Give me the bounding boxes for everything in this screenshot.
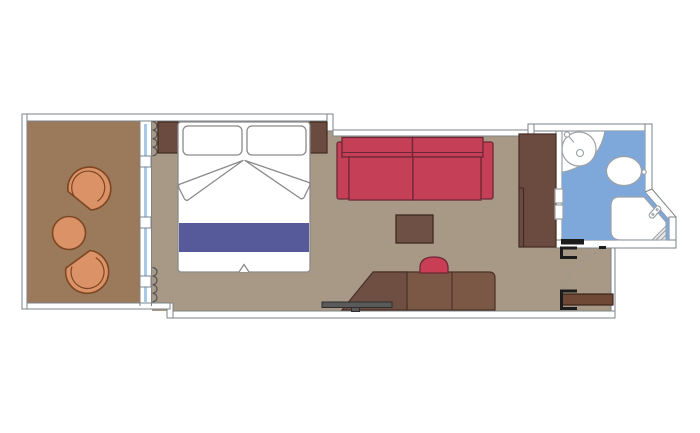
- tv: [322, 302, 392, 308]
- glass-door-handle-3: [140, 276, 151, 287]
- double-bed: [178, 122, 310, 272]
- wall-top-bathroom: [534, 124, 652, 131]
- wall-top-sofa: [333, 130, 534, 136]
- wall-step-1: [327, 114, 333, 131]
- sofa: [337, 138, 493, 201]
- tv-stand: [352, 308, 360, 312]
- sofa-seat-right: [413, 157, 481, 200]
- floor-plan: [0, 0, 700, 433]
- wardrobe-body: [519, 134, 556, 247]
- floor-plan-drawing: [0, 0, 700, 433]
- toilet: [607, 157, 642, 186]
- wall-balcony-bottom: [22, 303, 170, 309]
- stool: [420, 257, 448, 273]
- faucet: [564, 132, 569, 137]
- wall-top-bedroom: [22, 114, 333, 121]
- coffee-table: [396, 215, 433, 243]
- sofa-back-left: [342, 138, 413, 158]
- wall-right-upper: [645, 124, 652, 192]
- round-table: [53, 217, 86, 250]
- wall-bottom-main: [170, 311, 615, 318]
- wall-balcony-left: [22, 114, 27, 309]
- bathroom-door-stop: [599, 246, 606, 249]
- wall-corridor-right: [611, 248, 615, 318]
- bathroom-shelf-2: [555, 205, 563, 219]
- entry-door: [561, 294, 613, 305]
- sofa-seat-left: [349, 157, 413, 200]
- toilet-flush-button: [642, 170, 646, 174]
- glass-door-handle-2: [140, 217, 151, 228]
- wall-bathroom-left: [556, 131, 562, 240]
- sofa-back-right: [413, 138, 484, 158]
- bathroom-door: [561, 239, 584, 245]
- pillow-left: [183, 126, 242, 155]
- pillow-right: [247, 126, 306, 155]
- wardrobe: [519, 134, 556, 247]
- nightstand-right: [310, 122, 327, 153]
- bed-runner: [179, 223, 309, 252]
- bathroom-shelf-1: [555, 189, 563, 203]
- nightstand-left: [158, 122, 178, 153]
- sliding-glass-door: [140, 121, 152, 306]
- glass-door-handle-1: [140, 156, 151, 167]
